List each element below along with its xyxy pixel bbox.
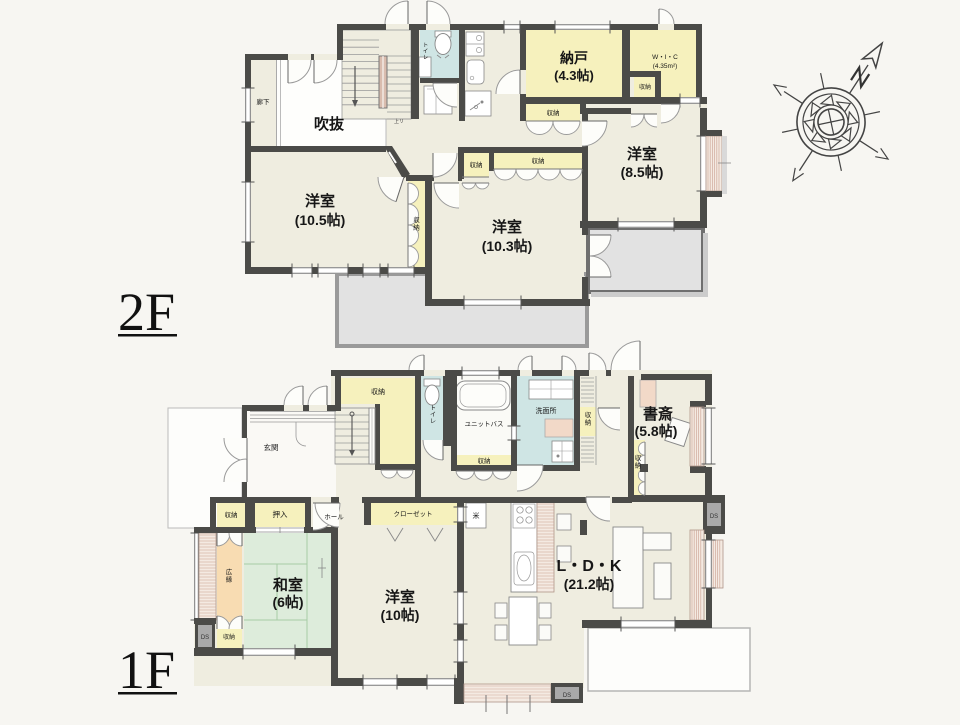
svg-text:吹抜: 吹抜 [314, 115, 345, 133]
svg-text:収納: 収納 [639, 83, 651, 91]
svg-text:DS: DS [710, 514, 718, 520]
svg-text:(21.2帖): (21.2帖) [564, 576, 615, 592]
svg-text:収納: 収納 [470, 160, 483, 169]
svg-text:納: 納 [635, 461, 642, 470]
svg-text:イ: イ [430, 413, 436, 419]
svg-text:(10.3帖): (10.3帖) [482, 238, 533, 254]
svg-text:押入: 押入 [273, 509, 288, 519]
svg-text:収: 収 [585, 411, 592, 419]
svg-text:洋室: 洋室 [385, 588, 415, 606]
svg-text:収納: 収納 [371, 387, 385, 396]
svg-text:DS: DS [563, 693, 571, 699]
svg-text:洗面所: 洗面所 [536, 406, 557, 415]
svg-text:洋室: 洋室 [305, 192, 335, 210]
svg-text:レ: レ [423, 55, 429, 61]
svg-text:収納: 収納 [225, 510, 238, 519]
svg-text:(8.5帖): (8.5帖) [621, 164, 664, 180]
svg-text:(10帖): (10帖) [381, 607, 420, 623]
svg-text:廊下: 廊下 [257, 97, 271, 106]
svg-text:洋室: 洋室 [627, 145, 657, 163]
svg-text:W・I・C: W・I・C [652, 54, 678, 61]
svg-text:縁: 縁 [226, 575, 233, 584]
svg-text:ユニットバス: ユニットバス [465, 420, 504, 428]
svg-text:書斎: 書斎 [643, 405, 673, 423]
svg-text:玄関: 玄関 [264, 442, 279, 452]
svg-text:納: 納 [585, 418, 592, 427]
svg-text:(6帖): (6帖) [272, 594, 303, 610]
svg-text:広: 広 [226, 567, 233, 576]
svg-text:収納: 収納 [478, 456, 491, 465]
svg-text:(4.35m²): (4.35m²) [653, 63, 678, 70]
svg-text:米: 米 [473, 511, 480, 520]
svg-text:納戸: 納戸 [560, 50, 588, 66]
svg-text:(4.3帖): (4.3帖) [554, 68, 594, 83]
svg-text:レ: レ [430, 419, 436, 425]
svg-text:DS: DS [201, 635, 209, 641]
svg-text:2F: 2F [118, 282, 175, 342]
svg-text:収納: 収納 [547, 108, 560, 117]
svg-text:収納: 収納 [223, 633, 235, 641]
svg-text:1F: 1F [118, 640, 175, 700]
svg-text:(10.5帖): (10.5帖) [295, 212, 346, 228]
svg-text:クローゼット: クローゼット [394, 509, 433, 518]
svg-text:ホール: ホール [324, 513, 344, 521]
svg-text:ト: ト [430, 406, 436, 412]
svg-text:(5.8帖): (5.8帖) [635, 423, 678, 439]
svg-text:L・D・K: L・D・K [557, 558, 622, 575]
svg-text:収納: 収納 [532, 156, 545, 165]
svg-text:納: 納 [413, 223, 420, 232]
svg-text:和室: 和室 [273, 576, 303, 594]
svg-text:洋室: 洋室 [492, 218, 522, 236]
svg-text:収: 収 [635, 454, 642, 462]
svg-text:上リ: 上リ [394, 118, 404, 125]
svg-text:収: 収 [413, 216, 420, 224]
